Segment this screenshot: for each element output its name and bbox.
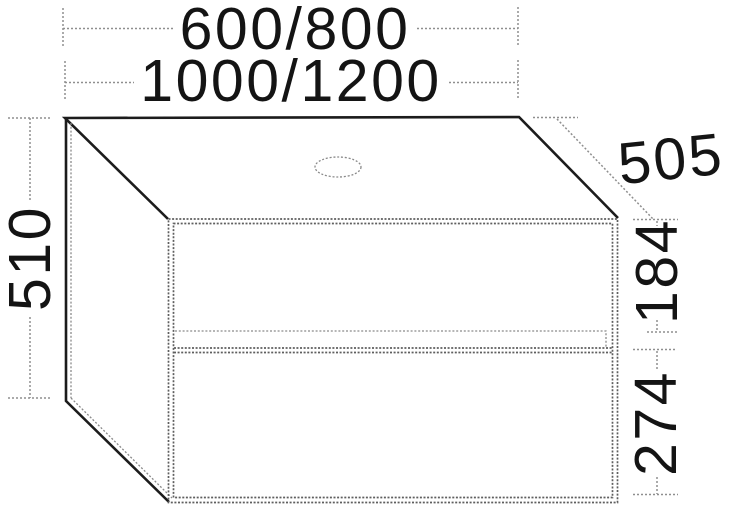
technical-drawing-canvas: 600/800 1000/1200 510 505	[0, 0, 734, 508]
dim-drawer-274: 274	[623, 350, 689, 495]
dim-drawer-184: 184	[624, 218, 690, 332]
dim-label-depth: 505	[615, 121, 727, 198]
dim-label-width-variant-2: 1000/1200	[140, 48, 441, 114]
dim-label-lower-drawer: 274	[623, 370, 689, 476]
dim-label-upper-drawer: 184	[624, 218, 690, 324]
dim-label-overall-height: 510	[0, 205, 63, 311]
cabinet-dimension-diagram: 600/800 1000/1200 510 505	[0, 0, 734, 508]
